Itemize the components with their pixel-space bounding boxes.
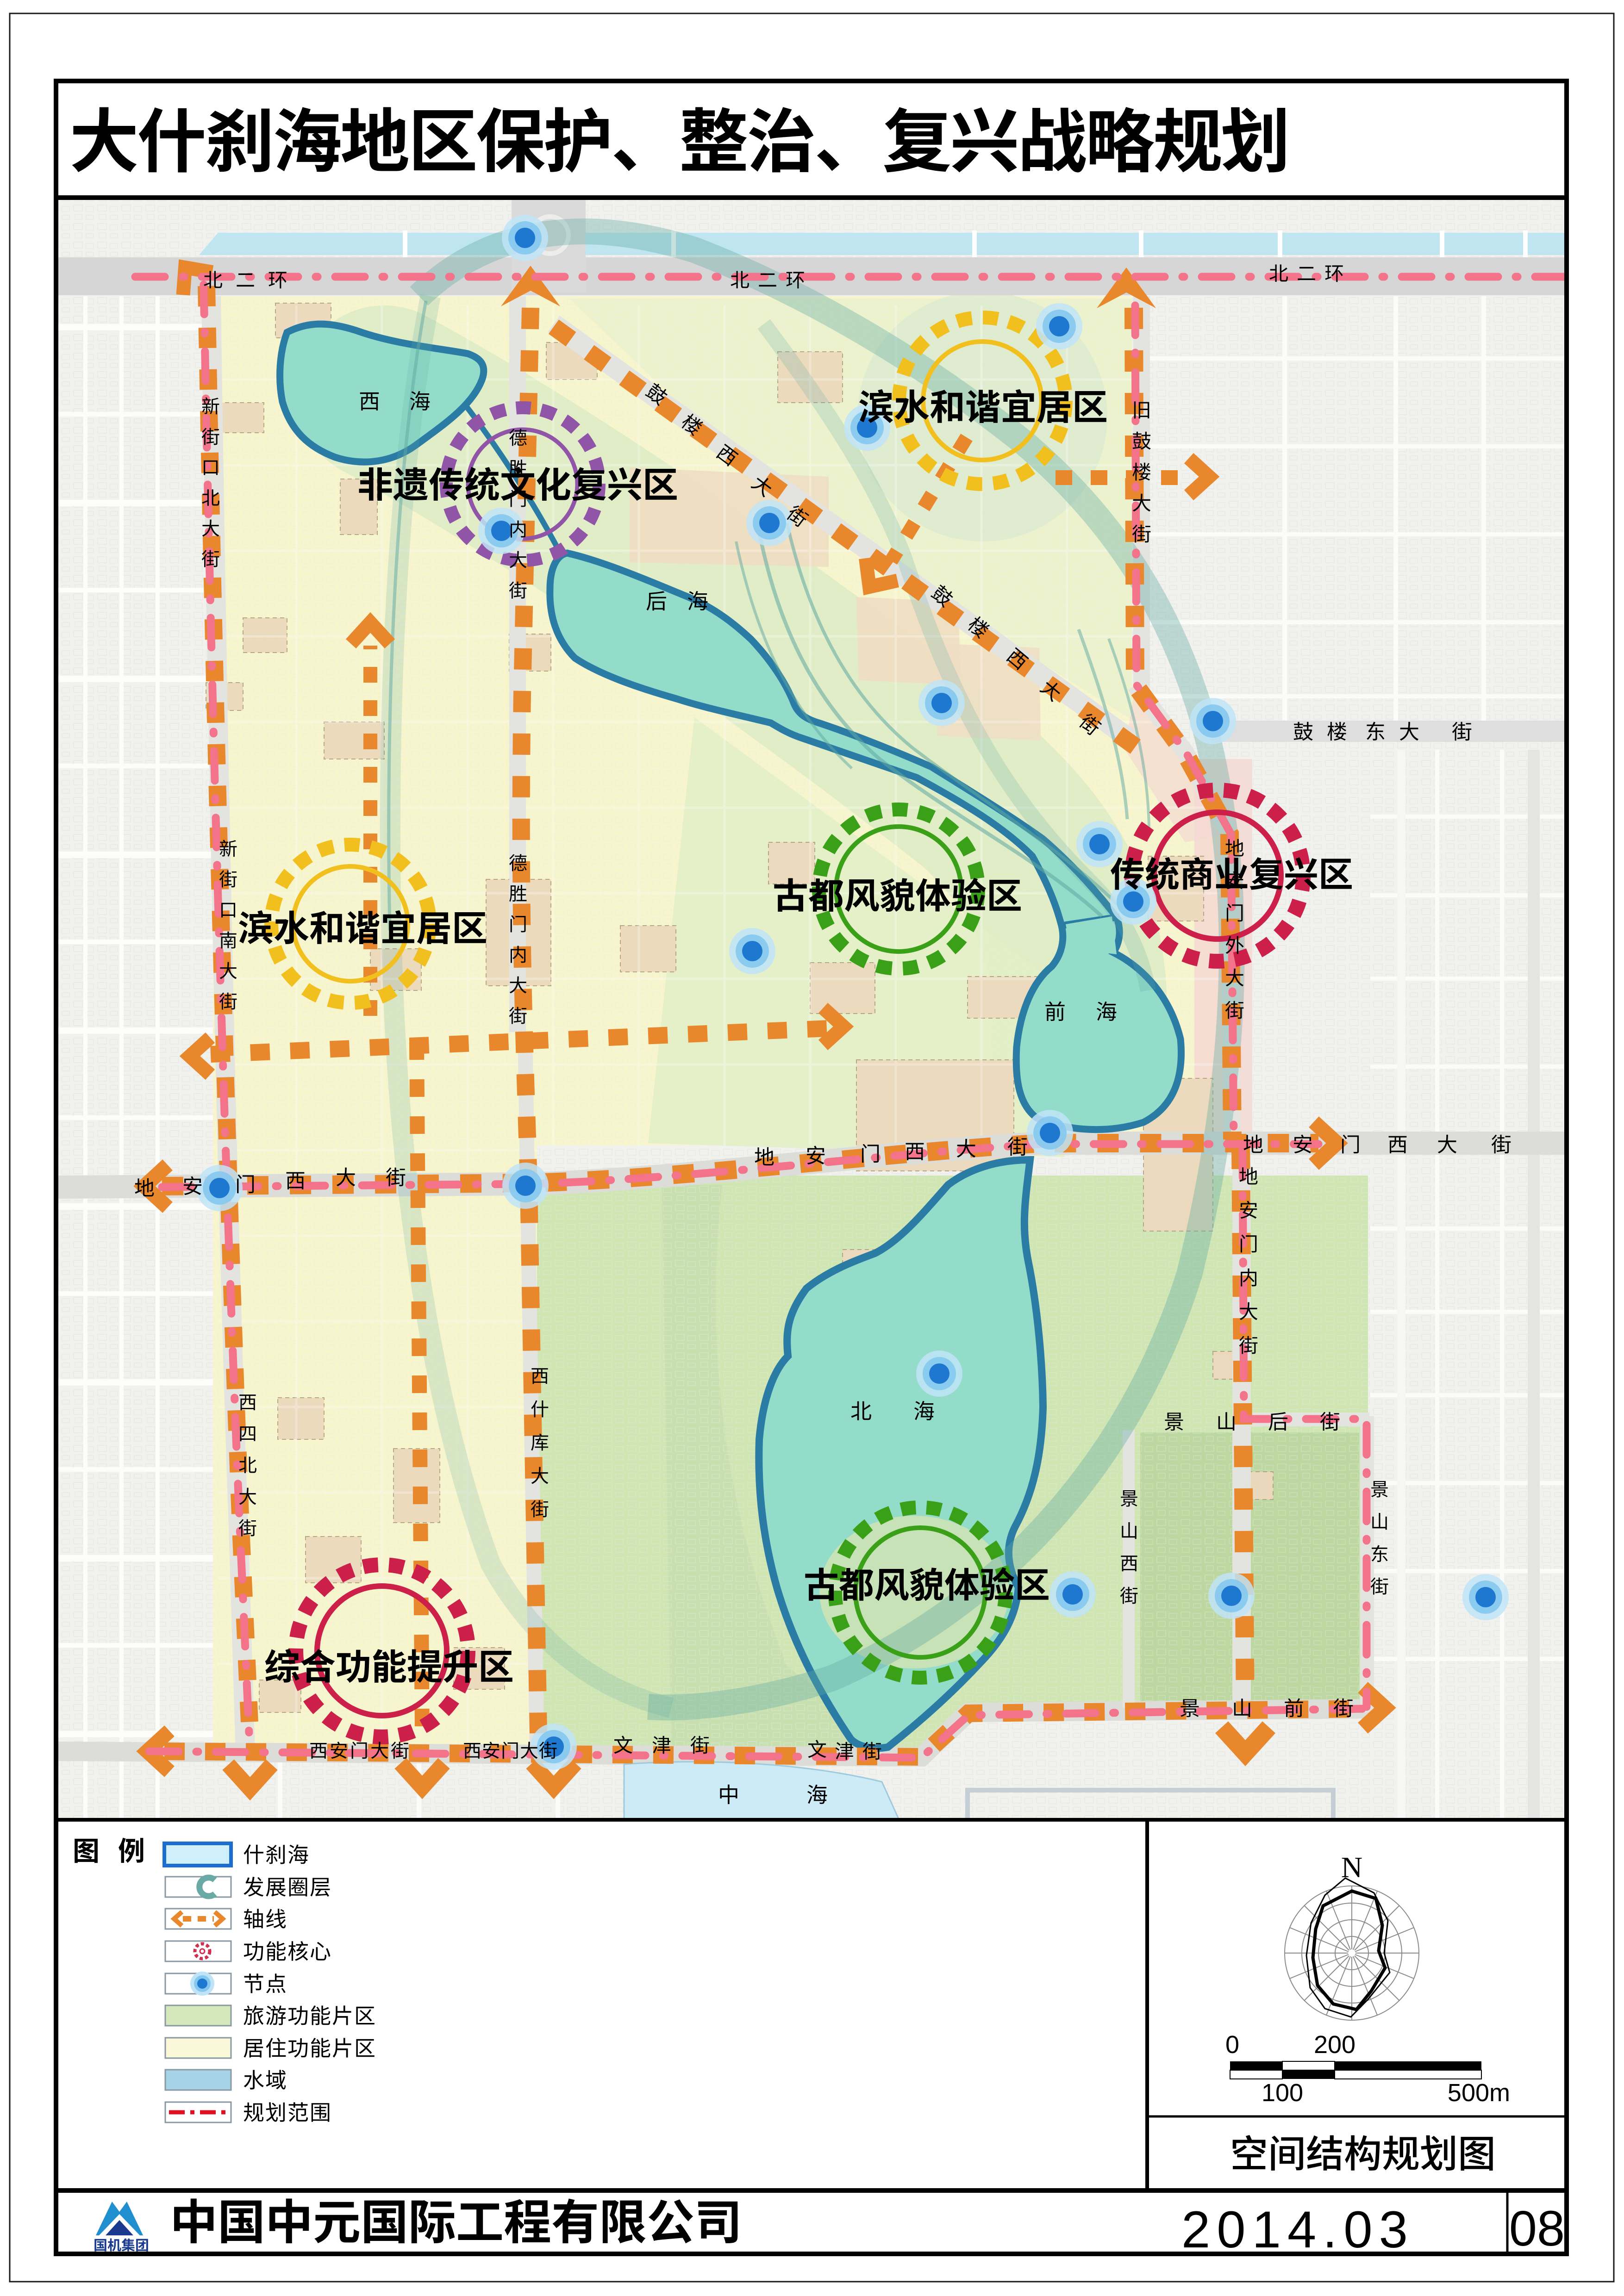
svg-text:2014.03: 2014.03: [1181, 2201, 1414, 2259]
svg-text:200: 200: [1314, 2031, 1355, 2059]
svg-text:0: 0: [1225, 2031, 1239, 2059]
svg-text:100: 100: [1262, 2079, 1303, 2107]
svg-text:08: 08: [1509, 2200, 1565, 2256]
svg-text:N: N: [1341, 1851, 1362, 1884]
svg-text:500m: 500m: [1448, 2079, 1510, 2107]
